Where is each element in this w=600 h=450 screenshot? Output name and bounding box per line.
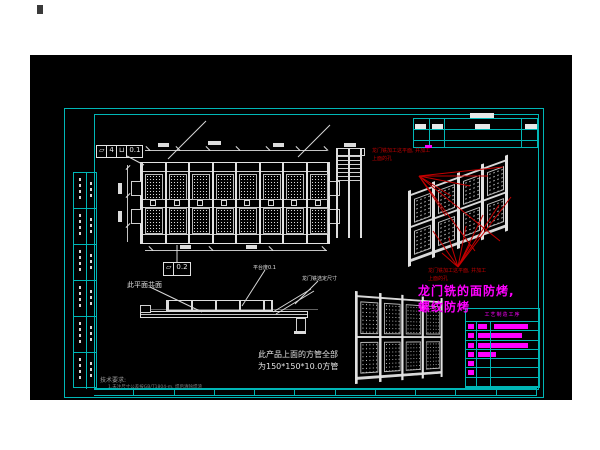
vertical-text-block xyxy=(90,218,92,234)
plan-post xyxy=(165,163,167,243)
revision-row xyxy=(74,173,96,209)
vertical-text-block xyxy=(79,250,81,274)
cad-drawing-canvas[interactable]: ▱ 4 ⊔ 0.1 ▱ 0.2 xyxy=(30,55,572,400)
iso-post xyxy=(505,155,508,232)
dimension-text-block xyxy=(208,141,221,145)
elevation-base-line xyxy=(140,314,308,315)
tech-requirements-title: 技术要求: xyxy=(100,375,126,384)
revision-strip xyxy=(73,172,97,388)
vertical-text-block xyxy=(79,358,81,382)
note-platform-flatness: 平台度0.1 xyxy=(253,264,276,271)
side-view-bar xyxy=(336,148,338,238)
cell-divider xyxy=(86,173,87,208)
tolerance-modifier: ⊔ xyxy=(117,146,127,157)
process-entry-block xyxy=(478,333,522,338)
plan-view xyxy=(140,162,330,244)
process-entry-block xyxy=(468,370,474,375)
plan-panel xyxy=(286,174,304,200)
iso-panel xyxy=(414,225,431,255)
iso-panel xyxy=(384,341,400,372)
dimension-text-block xyxy=(180,245,191,249)
cell-divider xyxy=(86,209,87,244)
iso-post xyxy=(355,291,358,384)
plan-post xyxy=(188,163,190,243)
tolerance-value: 0.2 xyxy=(174,263,189,275)
red-note-1-line1: 龙门铣加工这平面, 并加工 xyxy=(372,148,430,155)
highlighted-text-block xyxy=(432,124,443,129)
iso-panel xyxy=(406,341,421,371)
process-entry-block xyxy=(478,324,487,329)
plan-panel xyxy=(145,208,163,234)
red-note-1-line2: 上面的孔 xyxy=(372,156,392,163)
red-note-2-line2: 上面的孔 xyxy=(428,276,448,283)
column-divider xyxy=(476,321,477,389)
flatness-icon: ▱ xyxy=(164,263,174,275)
process-entry-block xyxy=(478,352,496,357)
highlighted-text-block xyxy=(415,124,426,129)
tolerance-count: 4 xyxy=(107,146,116,157)
iso-panel xyxy=(360,301,378,333)
plan-center-mark xyxy=(221,200,227,206)
app-icon xyxy=(37,5,43,14)
revision-row xyxy=(74,353,96,389)
vertical-text-block xyxy=(90,182,92,198)
info-cell xyxy=(215,389,255,395)
plan-center-mark xyxy=(174,200,180,206)
dimension-line xyxy=(145,250,327,251)
info-cell xyxy=(336,389,376,395)
plan-panel xyxy=(310,208,328,234)
highlighted-text-block xyxy=(470,113,494,118)
deck-divider xyxy=(191,301,193,310)
table-line xyxy=(414,140,537,141)
cell-divider xyxy=(86,317,87,352)
vertical-text-block xyxy=(90,362,92,378)
highlighted-text-block xyxy=(475,124,490,129)
iso-post xyxy=(432,181,435,258)
iso-post xyxy=(457,172,460,249)
iso-panel xyxy=(463,207,480,237)
dimension-text-block xyxy=(118,211,122,222)
product-note-line2: 为150*150*10.0方管 xyxy=(258,361,338,373)
flatness-callout-1: ▱ 4 ⊔ 0.1 xyxy=(96,145,143,158)
note-coplanar: 此平面共面 xyxy=(127,280,162,290)
deck-divider xyxy=(167,301,169,310)
plan-center-mark xyxy=(197,200,203,206)
revision-row xyxy=(74,281,96,317)
side-view-bar xyxy=(348,148,350,238)
plan-tab xyxy=(329,181,340,196)
plan-center-mark xyxy=(268,200,274,206)
info-cell xyxy=(376,389,416,395)
highlighted-text-block xyxy=(525,124,537,129)
deck-divider xyxy=(263,301,265,310)
plan-post xyxy=(282,163,284,243)
deck-divider xyxy=(239,301,241,310)
vertical-text-block xyxy=(90,290,92,306)
process-entry-bar xyxy=(494,324,528,329)
dimension-text-block xyxy=(118,183,122,194)
cad-window: ▱ 4 ⊔ 0.1 ▱ 0.2 xyxy=(0,0,600,450)
elevation-deck xyxy=(166,300,273,311)
plan-post xyxy=(212,163,214,243)
magenta-note-line2: 螺纹防烤 xyxy=(418,300,470,314)
info-cell xyxy=(497,389,537,395)
magenta-note-line1: 龙门铣的面防烤, xyxy=(418,284,515,298)
revision-row xyxy=(74,209,96,245)
process-entry-block xyxy=(468,324,474,329)
plan-panel xyxy=(263,208,281,234)
iso-panel xyxy=(426,341,440,370)
revision-row xyxy=(74,317,96,353)
process-entry-block xyxy=(468,361,474,366)
cell-divider xyxy=(86,245,87,280)
column-divider xyxy=(490,321,491,389)
table-line xyxy=(444,119,445,147)
tech-requirements-item: 1.未注尺寸公差按GB/T1804-m, 焊后清除焊渣 xyxy=(108,384,202,390)
vertical-text-block xyxy=(79,178,81,202)
plan-panel xyxy=(286,208,304,234)
vertical-text-block xyxy=(79,286,81,310)
plan-post xyxy=(141,163,143,243)
process-entry-block xyxy=(468,333,474,338)
plan-center-mark xyxy=(315,200,321,206)
info-cell xyxy=(255,389,295,395)
vertical-text-block xyxy=(79,322,81,346)
dimension-line xyxy=(127,165,128,242)
table-line xyxy=(414,129,537,130)
product-note-line1: 此产品上面的方管全部 xyxy=(258,349,338,361)
process-entry-block xyxy=(468,343,474,348)
plan-panel xyxy=(216,174,234,200)
info-cell xyxy=(416,389,456,395)
dimension-text-block xyxy=(246,245,257,249)
red-note-2-line1: 龙门铣加工这平面, 并加工 xyxy=(428,268,486,275)
plan-center-mark xyxy=(150,200,156,206)
note-mill-dims: 龙门铣选定尺寸 xyxy=(302,275,337,282)
cell-divider xyxy=(86,353,87,389)
info-cell xyxy=(456,389,496,395)
flatness-icon: ▱ xyxy=(97,146,107,157)
plan-panel xyxy=(263,174,281,200)
plan-panel xyxy=(169,174,187,200)
iso-panel xyxy=(384,303,400,334)
vertical-text-block xyxy=(90,326,92,342)
plan-panel xyxy=(310,174,328,200)
plan-center-mark xyxy=(291,200,297,206)
info-cell xyxy=(295,389,335,395)
tolerance-value: 0.1 xyxy=(127,146,142,157)
elevation-step xyxy=(140,305,151,313)
plan-panel xyxy=(216,208,234,234)
dimension-text-block xyxy=(158,143,169,147)
elevation-foot xyxy=(294,331,306,334)
iso-panel xyxy=(438,216,455,246)
vertical-text-block xyxy=(90,254,92,270)
iso-post xyxy=(401,295,403,381)
plan-panel xyxy=(239,174,257,200)
iso-rail xyxy=(355,336,443,338)
iso-post xyxy=(408,190,411,267)
flatness-callout-2: ▱ 0.2 xyxy=(163,262,191,276)
revision-row xyxy=(74,245,96,281)
plan-post xyxy=(259,163,261,243)
iso-panel xyxy=(360,341,378,373)
plan-panel xyxy=(145,174,163,200)
process-entry-block xyxy=(478,343,528,348)
dimension-text-block xyxy=(344,143,356,147)
plan-panel xyxy=(192,208,210,234)
plan-panel xyxy=(169,208,187,234)
iso-post xyxy=(379,293,381,382)
vertical-text-block xyxy=(79,214,81,238)
plan-panel xyxy=(239,208,257,234)
process-entry-block xyxy=(468,352,474,357)
plan-center-mark xyxy=(244,200,250,206)
iso-post xyxy=(481,163,484,240)
plan-tab xyxy=(329,209,340,224)
deck-divider xyxy=(215,301,217,310)
table-line xyxy=(521,119,522,147)
deck-divider xyxy=(271,301,273,310)
plan-panel xyxy=(192,174,210,200)
table-line xyxy=(429,119,430,147)
top-title-table xyxy=(413,118,538,148)
iso-panel xyxy=(487,198,504,228)
plan-post xyxy=(235,163,237,243)
dimension-text-block xyxy=(273,143,284,147)
plan-post xyxy=(306,163,308,243)
side-view-bar xyxy=(360,148,362,238)
process-table: 工艺制造工序 xyxy=(465,308,540,388)
cell-divider xyxy=(86,281,87,316)
